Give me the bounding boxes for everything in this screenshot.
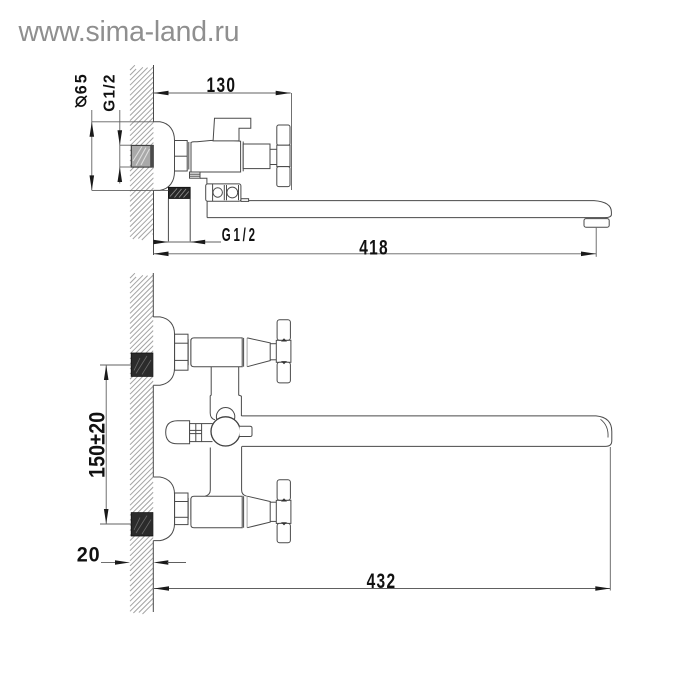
svg-text:G1/2: G1/2: [222, 225, 258, 245]
svg-text:130: 130: [207, 72, 237, 96]
svg-text:432: 432: [367, 569, 397, 593]
svg-text:150±20: 150±20: [85, 412, 109, 478]
svg-text:20: 20: [77, 543, 101, 567]
svg-text:418: 418: [359, 235, 389, 259]
svg-text:65: 65: [73, 72, 91, 94]
svg-text:www.sima-land.ru: www.sima-land.ru: [18, 16, 240, 48]
svg-text:G1/2: G1/2: [101, 73, 118, 112]
